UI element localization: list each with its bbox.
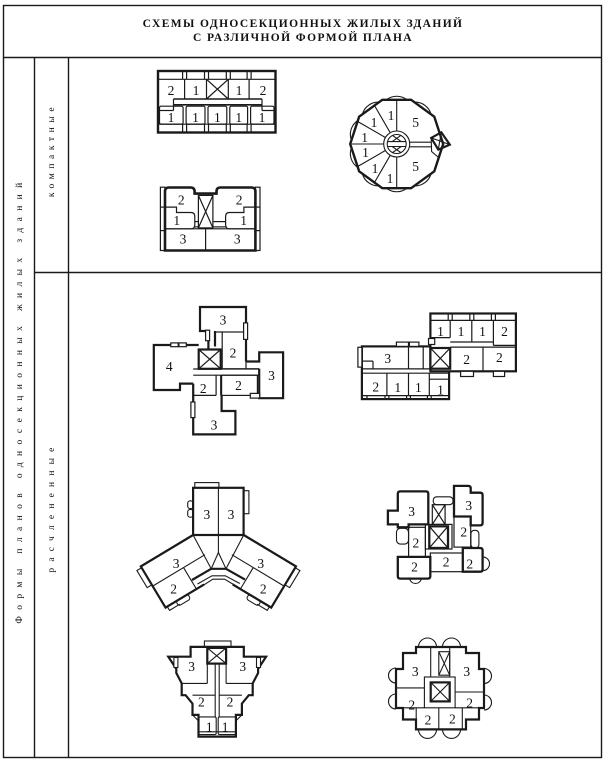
svg-text:2: 2 xyxy=(230,346,237,361)
svg-text:3: 3 xyxy=(180,232,187,247)
svg-text:1: 1 xyxy=(240,213,247,228)
svg-text:1: 1 xyxy=(214,110,221,125)
svg-text:5: 5 xyxy=(412,159,419,174)
svg-text:2: 2 xyxy=(413,536,420,551)
svg-text:4: 4 xyxy=(166,359,173,374)
svg-text:1: 1 xyxy=(193,83,200,98)
svg-text:3: 3 xyxy=(234,232,241,247)
svg-text:2: 2 xyxy=(260,582,267,597)
svg-text:1: 1 xyxy=(372,161,379,176)
svg-text:1: 1 xyxy=(437,383,444,398)
svg-text:СХЕМЫ ОДНОСЕКЦИОННЫХ ЖИЛЫХ ЗДА: СХЕМЫ ОДНОСЕКЦИОННЫХ ЖИЛЫХ ЗДАНИЙ xyxy=(143,16,464,30)
svg-text:2: 2 xyxy=(463,352,470,367)
svg-text:2: 2 xyxy=(466,696,473,711)
svg-text:3: 3 xyxy=(384,351,391,366)
svg-text:1: 1 xyxy=(437,324,444,339)
svg-text:1: 1 xyxy=(236,83,243,98)
svg-text:2: 2 xyxy=(235,378,242,393)
svg-text:1: 1 xyxy=(394,380,401,395)
svg-text:2: 2 xyxy=(170,582,177,597)
svg-text:3: 3 xyxy=(228,507,235,522)
svg-text:компактные: компактные xyxy=(47,103,57,197)
svg-text:1: 1 xyxy=(259,110,266,125)
svg-text:5: 5 xyxy=(412,115,419,130)
svg-text:1: 1 xyxy=(168,110,175,125)
svg-text:3: 3 xyxy=(204,507,211,522)
svg-text:1: 1 xyxy=(173,213,180,228)
svg-text:1: 1 xyxy=(388,108,395,123)
svg-text:3: 3 xyxy=(465,498,472,513)
svg-text:2: 2 xyxy=(198,695,205,710)
svg-text:1: 1 xyxy=(192,110,199,125)
svg-text:1: 1 xyxy=(371,115,378,130)
svg-text:1: 1 xyxy=(222,720,229,735)
svg-text:2: 2 xyxy=(466,557,473,572)
svg-text:3: 3 xyxy=(220,313,227,328)
svg-text:3: 3 xyxy=(188,659,195,674)
svg-text:2: 2 xyxy=(496,350,503,365)
svg-text:2: 2 xyxy=(372,380,379,395)
svg-text:1: 1 xyxy=(235,110,242,125)
svg-text:2: 2 xyxy=(168,83,175,98)
svg-text:1: 1 xyxy=(458,324,465,339)
svg-text:3: 3 xyxy=(239,659,246,674)
svg-text:2: 2 xyxy=(449,712,456,727)
svg-text:2: 2 xyxy=(460,525,467,540)
svg-text:3: 3 xyxy=(257,556,264,571)
svg-text:2: 2 xyxy=(443,555,450,570)
svg-text:2: 2 xyxy=(425,713,432,728)
svg-text:3: 3 xyxy=(412,664,419,679)
svg-text:3: 3 xyxy=(211,418,218,433)
svg-text:3: 3 xyxy=(173,556,180,571)
svg-text:2: 2 xyxy=(260,83,267,98)
svg-text:2: 2 xyxy=(200,381,207,396)
svg-text:3: 3 xyxy=(463,664,470,679)
svg-text:1: 1 xyxy=(479,324,486,339)
svg-text:2: 2 xyxy=(411,560,418,575)
svg-text:Формы планов односекционных жи: Формы планов односекционных жилых зданий xyxy=(14,176,25,623)
svg-text:1: 1 xyxy=(362,145,369,160)
svg-text:2: 2 xyxy=(178,193,185,208)
svg-text:1: 1 xyxy=(415,380,422,395)
svg-text:1: 1 xyxy=(361,130,368,145)
svg-text:2: 2 xyxy=(408,698,415,713)
svg-text:3: 3 xyxy=(408,504,415,519)
svg-text:1: 1 xyxy=(206,720,213,735)
svg-text:3: 3 xyxy=(268,368,275,383)
svg-text:расчлененные: расчлененные xyxy=(47,441,57,572)
svg-text:1: 1 xyxy=(387,171,394,186)
svg-text:2: 2 xyxy=(236,193,243,208)
svg-text:2: 2 xyxy=(501,324,508,339)
svg-text:2: 2 xyxy=(227,695,234,710)
svg-text:С РАЗЛИЧНОЙ ФОРМОЙ ПЛАНА: С РАЗЛИЧНОЙ ФОРМОЙ ПЛАНА xyxy=(193,30,413,44)
